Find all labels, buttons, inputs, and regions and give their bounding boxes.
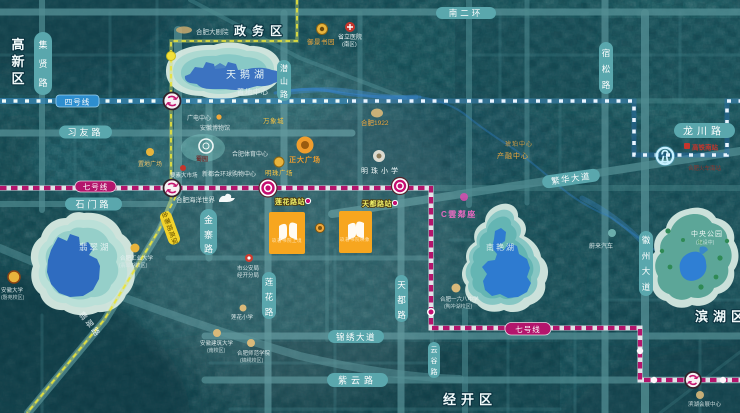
- svg-text:中央公园: 中央公园: [691, 229, 723, 238]
- svg-text:南二环: 南二环: [449, 8, 484, 18]
- svg-text:南艳湖: 南艳湖: [486, 242, 516, 252]
- svg-text:产融中心: 产融中心: [497, 151, 529, 160]
- svg-text:蜀园: 蜀园: [196, 155, 208, 163]
- svg-text:御景书园: 御景书园: [307, 37, 335, 46]
- svg-text:广电中心: 广电中心: [187, 114, 211, 122]
- svg-text:置地广场: 置地广场: [138, 160, 162, 168]
- svg-text:C雲鄰座: C雲鄰座: [441, 209, 477, 219]
- svg-text:玖著书院上境: 玖著书院上境: [272, 237, 302, 244]
- svg-text:置地中心: 置地中心: [237, 87, 269, 96]
- svg-text:合肥师范学院: 合肥师范学院: [237, 349, 271, 357]
- svg-text:(锦绣校区): (锦绣校区): [240, 357, 264, 364]
- svg-text:紫云路: 紫云路: [338, 375, 377, 386]
- svg-text:翡翠湖: 翡翠湖: [79, 242, 111, 252]
- svg-text:集贤路: 集贤路: [38, 39, 47, 88]
- svg-text:合肥工业大学: 合肥工业大学: [120, 254, 154, 262]
- svg-text:(建设中): (建设中): [696, 239, 715, 246]
- svg-text:七号线: 七号线: [515, 324, 541, 334]
- svg-text:经开区: 经开区: [443, 392, 497, 407]
- svg-text:(南区): (南区): [342, 40, 357, 48]
- svg-text:要素大市场: 要素大市场: [170, 171, 198, 179]
- svg-text:习友路: 习友路: [67, 127, 103, 138]
- svg-text:琥珀中心: 琥珀中心: [505, 140, 533, 148]
- svg-text:高铁南站: 高铁南站: [692, 143, 719, 152]
- svg-text:玖著书院映象: 玖著书院映象: [340, 236, 370, 243]
- svg-text:新都会环球购物中心: 新都会环球购物中心: [202, 170, 256, 178]
- svg-text:合肥海洋世界: 合肥海洋世界: [176, 195, 216, 204]
- svg-text:莲花路站: 莲花路站: [275, 197, 305, 206]
- svg-text:合肥火车南站: 合肥火车南站: [688, 164, 722, 172]
- svg-text:莲花路: 莲花路: [265, 277, 274, 317]
- svg-text:安徽大学: 安徽大学: [1, 286, 24, 294]
- svg-text:(翡翠湖校区): (翡翠湖校区): [119, 262, 148, 269]
- svg-text:七号线: 七号线: [83, 182, 109, 192]
- svg-text:龙川路: 龙川路: [683, 125, 725, 138]
- svg-text:滨湖区: 滨湖区: [695, 309, 740, 324]
- svg-text:(磬苑校区): (磬苑校区): [1, 294, 25, 301]
- svg-text:明珠小学: 明珠小学: [361, 166, 401, 175]
- svg-text:合肥大剧院: 合肥大剧院: [196, 27, 229, 36]
- svg-text:省立医院: 省立医院: [338, 33, 362, 41]
- svg-text:安徽建筑大学: 安徽建筑大学: [200, 339, 234, 347]
- svg-text:潜山路: 潜山路: [280, 63, 288, 99]
- svg-text:市公安局: 市公安局: [237, 264, 259, 272]
- svg-text:经开分局: 经开分局: [237, 271, 259, 279]
- svg-text:锦绣大道: 锦绣大道: [336, 332, 376, 342]
- svg-text:合肥体育中心: 合肥体育中心: [232, 150, 268, 158]
- svg-text:正大广场: 正大广场: [289, 155, 321, 164]
- svg-text:莲花小学: 莲花小学: [231, 313, 254, 321]
- svg-text:政务区: 政务区: [234, 23, 288, 38]
- svg-text:(南校区): (南校区): [207, 347, 226, 354]
- svg-text:万象城: 万象城: [263, 116, 284, 125]
- svg-text:石门路: 石门路: [75, 199, 111, 210]
- svg-text:云谷路: 云谷路: [431, 346, 438, 376]
- svg-text:宿松路: 宿松路: [602, 48, 611, 90]
- svg-text:金寨路: 金寨路: [204, 214, 213, 254]
- svg-text:明珠广场: 明珠广场: [265, 168, 293, 177]
- svg-text:合肥1922: 合肥1922: [361, 118, 389, 127]
- svg-text:天鹅湖: 天鹅湖: [226, 68, 268, 81]
- svg-text:合肥一六八中学: 合肥一六八中学: [440, 295, 479, 303]
- svg-text:四号线: 四号线: [65, 97, 91, 107]
- svg-text:高新区: 高新区: [11, 37, 24, 86]
- svg-text:(陶冲湖校区): (陶冲湖校区): [444, 303, 473, 310]
- svg-text:滨湖会展中心: 滨湖会展中心: [688, 400, 722, 408]
- svg-text:天都路: 天都路: [397, 280, 406, 320]
- svg-text:蔚来汽车: 蔚来汽车: [589, 242, 613, 250]
- svg-text:天都路站: 天都路站: [362, 199, 392, 208]
- svg-text:安徽博物馆: 安徽博物馆: [200, 124, 230, 132]
